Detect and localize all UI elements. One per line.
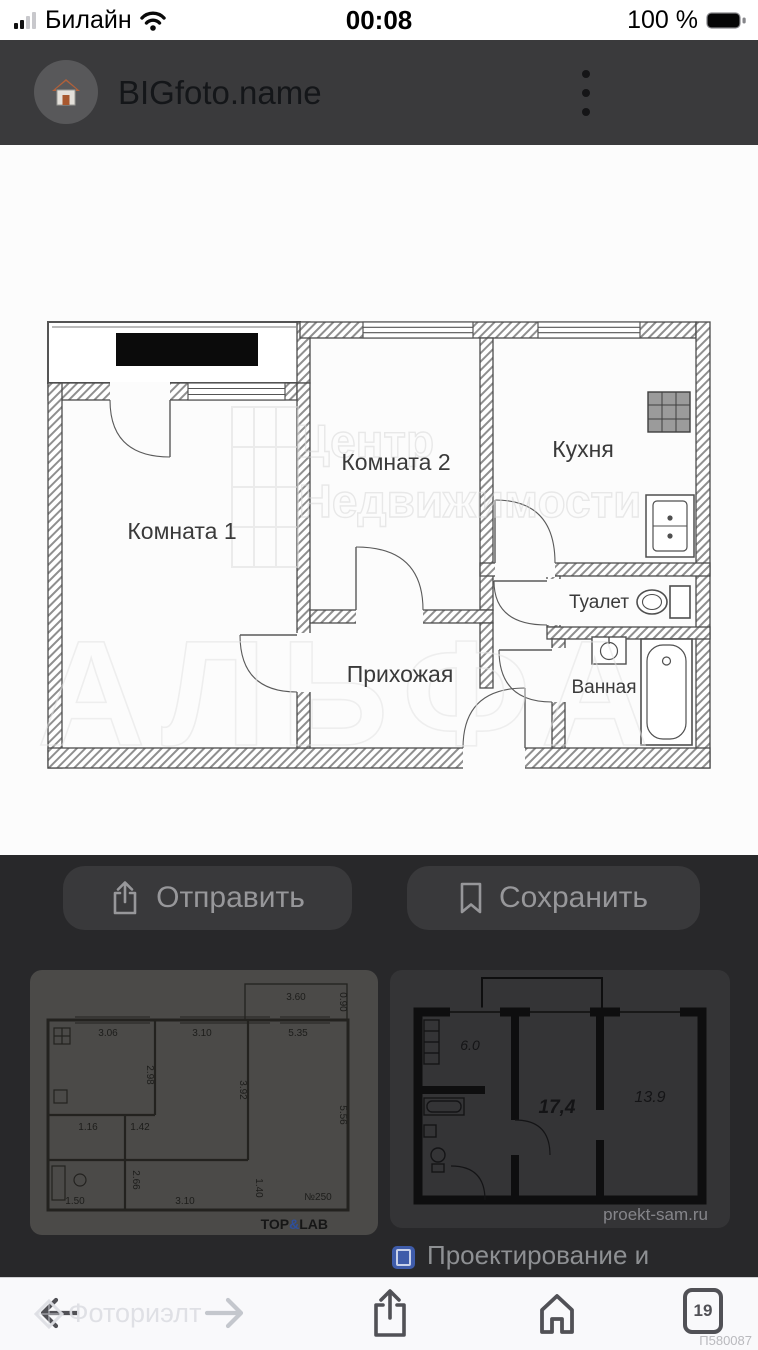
floorplan-image[interactable]: Центр Недвижимости АЛЬФА Комната 1 Комна… (0, 145, 758, 855)
save-label: Сохранить (499, 881, 648, 915)
svg-text:1.16: 1.16 (78, 1122, 98, 1133)
label-kitchen: Кухня (552, 436, 614, 462)
svg-text:3.10: 3.10 (175, 1196, 195, 1207)
browser-toolbar: 19 Фоториэлт П580087 (0, 1277, 758, 1350)
share-page-button[interactable] (370, 1287, 410, 1339)
site-title: BIGfoto.name (118, 40, 322, 145)
kitchen-stove-icon (648, 392, 690, 432)
svg-text:3.10: 3.10 (192, 1028, 212, 1039)
svg-text:5.56: 5.56 (337, 1105, 348, 1125)
tabs-count: 19 (694, 1301, 713, 1321)
phone-screen: Билайн 00:08 100 % BIGfoto.name (0, 0, 758, 1350)
house-icon (49, 76, 83, 108)
svg-text:2.98: 2.98 (144, 1065, 155, 1085)
label-bathroom: Ванная (571, 677, 636, 698)
tabs-button[interactable]: 19 (683, 1288, 723, 1334)
redacted-label (116, 333, 258, 366)
svg-text:АЛЬФА: АЛЬФА (37, 609, 663, 777)
label-toilet: Туалет (569, 592, 629, 613)
svg-text:3.92: 3.92 (237, 1080, 248, 1100)
thumb1-dimensions: 3.60 0.90 3.06 3.10 5.35 2.98 3.92 5.56 … (65, 992, 348, 1207)
svg-text:1.42: 1.42 (130, 1122, 150, 1133)
svg-text:5.35: 5.35 (288, 1028, 308, 1039)
svg-text:№250: №250 (304, 1192, 332, 1203)
save-button[interactable]: Сохранить (407, 866, 700, 930)
home-button[interactable] (534, 1291, 580, 1335)
related-site-favicon (392, 1246, 415, 1269)
proekt-sam-watermark: proekt-sam.ru (603, 1205, 708, 1224)
share-button[interactable]: Отправить (63, 866, 352, 930)
forward-button[interactable] (203, 1294, 249, 1332)
status-bar: Билайн 00:08 100 % (0, 0, 758, 40)
related-image-2[interactable]: 6.0 17,4 13.9 proekt-sam.ru (390, 970, 730, 1228)
battery-percent: 100 % (627, 6, 698, 35)
balcony (48, 322, 300, 383)
kitchen-sink-icon (646, 495, 694, 557)
svg-text:17,4: 17,4 (539, 1097, 576, 1118)
related-image-1[interactable]: 3.60 0.90 3.06 3.10 5.35 2.98 3.92 5.56 … (30, 970, 378, 1235)
svg-text:13.9: 13.9 (634, 1089, 665, 1106)
image-viewer-panel: Отправить Сохранить (0, 855, 758, 1277)
svg-text:3.60: 3.60 (286, 992, 306, 1003)
label-room1: Комната 1 (127, 518, 236, 544)
related-site-caption: Проектирование и (427, 1240, 649, 1271)
thumb2-areas: 6.0 17,4 13.9 (460, 1037, 665, 1118)
image-viewer-header: BIGfoto.name (0, 40, 758, 145)
label-room2: Комната 2 (341, 449, 450, 475)
battery-icon (706, 11, 748, 30)
back-button[interactable] (35, 1294, 81, 1332)
svg-text:0.90: 0.90 (337, 992, 348, 1012)
thumb2-fixtures (424, 1020, 550, 1200)
photo-id-label: П580087 (699, 1333, 752, 1348)
bookmark-icon (459, 882, 483, 914)
label-hallway: Прихожая (347, 661, 454, 687)
svg-text:6.0: 6.0 (460, 1037, 480, 1053)
svg-text:3.06: 3.06 (98, 1028, 118, 1039)
svg-text:1.50: 1.50 (65, 1196, 85, 1207)
share-label: Отправить (156, 881, 305, 915)
svg-text:1.40: 1.40 (253, 1178, 264, 1198)
related-site-row[interactable]: Проектирование и (392, 1240, 649, 1271)
more-options-button[interactable] (578, 70, 594, 116)
site-favicon[interactable] (34, 60, 98, 124)
svg-text:2.66: 2.66 (130, 1170, 141, 1190)
share-icon (110, 880, 140, 916)
svg-text:Недвижимости: Недвижимости (299, 475, 642, 527)
toplab-watermark: TOP&LAB (261, 1216, 328, 1232)
